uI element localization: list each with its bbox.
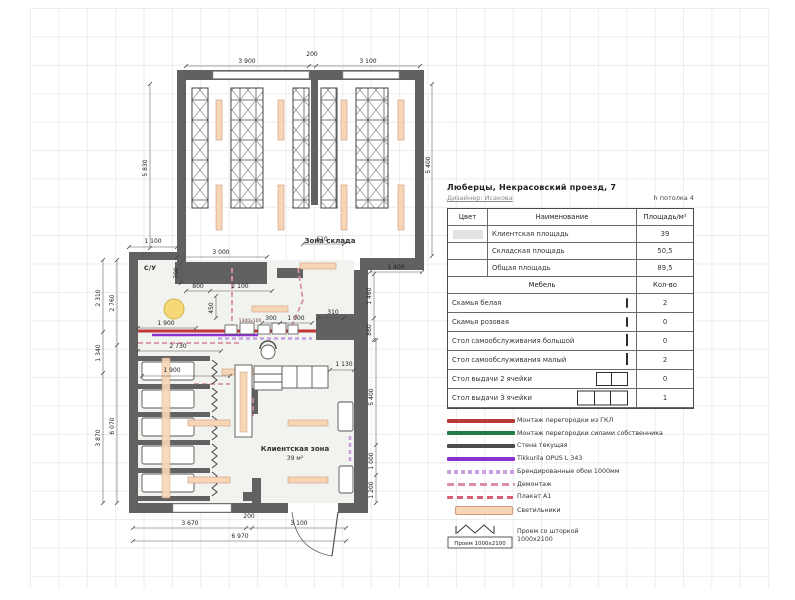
dim-label: 2 100 (231, 283, 248, 290)
dim-label: 5 400 (368, 388, 375, 405)
legend-label: Светильники (517, 507, 561, 514)
drawer-unit (254, 366, 282, 390)
info-panel: Люберцы, Некрасовский проезд, 7 Дизайнер… (447, 183, 694, 556)
wall-stub-l-foot (243, 492, 253, 501)
issue-table-2cells-icon (597, 372, 628, 386)
area-row: Складская площадь 50,5 (448, 243, 693, 260)
wall-mid-stub (311, 80, 318, 205)
legend-item: Tikkurila OPUS L 343 (447, 455, 694, 462)
area-value: 89,5 (637, 260, 693, 277)
dim-label: 6 070 (109, 417, 116, 434)
legend-item: Монтаж перегородки силами собственника (447, 430, 694, 437)
furniture-row: Стол выдачи 3 ячейки 1 (448, 389, 693, 408)
furniture-qty: 0 (637, 370, 693, 389)
self-service-table-big-icon (626, 334, 628, 346)
legend-item: Демонтаж (447, 481, 694, 488)
curtain-opening-swatch: Проем 1000х2100 (447, 521, 517, 551)
dim-label: 2 310 (95, 289, 102, 306)
legend-label: Плакат А1 (517, 493, 551, 500)
wc-label: С/У (144, 264, 156, 272)
dim-label: 3 670 (181, 520, 198, 527)
dim-label: 3 100 (290, 520, 307, 527)
rack (293, 88, 309, 208)
furniture-name: Стол выдачи 2 ячейки (452, 375, 532, 383)
dim-label: 1 460 (366, 287, 373, 304)
furniture-name: Стол самообслуживания малый (452, 356, 566, 364)
floor-plan-sheet: 1300х100 (0, 0, 795, 600)
area-table-header: Цвет Наименование Площадь/м² (448, 209, 693, 226)
dim-label: 860 (366, 324, 373, 336)
chair (261, 345, 275, 359)
furniture-qty: 2 (637, 294, 693, 313)
area-name: Складская площадь (488, 243, 637, 260)
dim-label: 3 100 (359, 58, 376, 65)
furniture-name: Скамья розовая (452, 318, 509, 326)
designer-link[interactable]: Дизайнер: Исакова (447, 194, 513, 202)
furniture-qty: 0 (637, 332, 693, 351)
client-zone-label: Клиентская зона (261, 445, 330, 453)
dim-label: 5 830 (142, 159, 149, 176)
bench-pink-icon (626, 317, 628, 327)
area-name: Общая площадь (488, 260, 637, 277)
dim-label: 200 (243, 513, 255, 520)
legend: Монтаж перегородки из ГКЛ Монтаж перегор… (447, 417, 694, 551)
wall-client-right (354, 340, 368, 512)
client-zone-area: 39 м² (287, 455, 304, 462)
legend-label: Tikkurila OPUS L 343 (517, 455, 582, 462)
dim-label: 1 100 (144, 238, 161, 245)
dim-label: 1 000 (368, 452, 375, 469)
dim-label: 200 (306, 51, 318, 58)
dim-label: 1 400 (387, 264, 404, 271)
col-qty: Кол-во (637, 277, 693, 294)
legend-item: Брендированные обои 1000мм (447, 468, 694, 475)
poster-swatch (447, 496, 515, 499)
rack (356, 88, 388, 208)
counter-light (240, 372, 247, 432)
furniture-name: Скамья белая (452, 299, 501, 307)
dim-label: 1 340 (95, 344, 102, 361)
legend-label: Монтаж перегородки из ГКЛ (517, 417, 613, 424)
furniture-row: Стол самообслуживания малый 2 (448, 351, 693, 370)
dim-label: 3 000 (212, 249, 229, 256)
wall-notch-top (129, 252, 177, 260)
legend-item: Проем 1000х2100 Проем со шторкой 1000х21… (447, 521, 694, 551)
address: Люберцы, Некрасовский проезд, 7 (447, 183, 694, 192)
ceiling-height: h потолка 4 (654, 194, 694, 202)
dim-label: 3 870 (95, 429, 102, 446)
client-area-swatch (453, 230, 483, 239)
furniture-name: Стол самообслуживания большой (452, 337, 574, 345)
wall-bottom-right (338, 503, 368, 513)
dim-label: 800 (192, 283, 204, 290)
dim-label: 3 900 (238, 58, 255, 65)
dim-label: 1 900 (163, 367, 180, 374)
bench-white-icon (626, 298, 628, 308)
dim-label: 700 (173, 267, 180, 279)
dim-label: 300 (265, 315, 277, 322)
area-name: Клиентская площадь (488, 226, 637, 243)
gkl-partition-swatch (447, 419, 515, 423)
window-top-left (213, 72, 309, 79)
dim-label: 1 000 (287, 315, 304, 322)
col-furniture: Мебель (448, 277, 637, 294)
door-arc (292, 512, 332, 556)
dim-label: 5 400 (425, 156, 432, 173)
area-row: Клиентская площадь 39 (448, 226, 693, 243)
rack (231, 88, 263, 208)
issue-table-3 (282, 366, 328, 388)
area-row: Общая площадь 89,5 (448, 260, 693, 277)
legend-label: Брендированные обои 1000мм (517, 468, 619, 475)
window-bottom (173, 504, 231, 512)
legend-label: Стена текущая (517, 442, 568, 449)
furniture-table: Мебель Кол-во Скамья белая 2 Скамья розо… (448, 277, 693, 408)
demolition-swatch (447, 483, 515, 486)
wall-client-left (129, 252, 138, 512)
dim-label: 2 730 (169, 343, 186, 350)
legend-item: Светильники (447, 506, 694, 515)
lamp-swatch (455, 506, 513, 515)
entry-door (292, 512, 338, 556)
legend-label: Проем со шторкой 1000х2100 (517, 528, 597, 542)
dim-label: 6 970 (231, 533, 248, 540)
owner-partition-swatch (447, 431, 515, 435)
legend-item: Стена текущая (447, 442, 694, 449)
furniture-row: Стол выдачи 2 ячейки 0 (448, 370, 693, 389)
area-table: Цвет Наименование Площадь/м² Клиентская … (447, 208, 694, 409)
door-leaf (332, 512, 338, 556)
col-area: Площадь/м² (637, 209, 693, 226)
legend-label: Монтаж перегородки силами собственника (517, 430, 663, 437)
dim-label: 310 (327, 309, 339, 316)
furniture-qty: 2 (637, 351, 693, 370)
furniture-row: Скамья розовая 0 (448, 313, 693, 332)
self-service-table-small-icon (626, 353, 628, 365)
curtain-box-label: Проем 1000х2100 (454, 541, 506, 547)
area-value: 39 (637, 226, 693, 243)
legend-item: Плакат А1 (447, 493, 694, 500)
furniture-row: Скамья белая 2 (448, 294, 693, 313)
storage-zone-label: Зона склада (305, 237, 356, 245)
issue-table-3cells-icon (579, 391, 629, 406)
existing-wall-swatch (447, 444, 515, 448)
area-value: 50,5 (637, 243, 693, 260)
furniture-qty: 0 (637, 313, 693, 332)
wallpaper-swatch (447, 470, 515, 474)
wall-stub-l (252, 478, 261, 504)
legend-item: Монтаж перегородки из ГКЛ (447, 417, 694, 424)
window-top-right (343, 72, 399, 79)
legend-label: Демонтаж (517, 481, 552, 488)
dim-label: 450 (208, 302, 215, 314)
furniture-name: Стол выдачи 3 ячейки (452, 394, 532, 402)
rack (192, 88, 208, 208)
col-name: Наименование (488, 209, 637, 226)
col-color: Цвет (448, 209, 488, 226)
pouf (164, 299, 184, 319)
wall-3000 (175, 262, 267, 284)
dim-label: 1 130 (335, 361, 352, 368)
paint-swatch (447, 457, 515, 461)
dim-label: 2 760 (109, 294, 116, 311)
fitting-room-light-strip (162, 358, 170, 498)
furniture-row: Стол самообслуживания большой 0 (448, 332, 693, 351)
dim-label: 1 200 (368, 481, 375, 498)
rack (321, 88, 337, 208)
furniture-table-header: Мебель Кол-во (448, 277, 693, 294)
furniture-qty: 1 (637, 389, 693, 408)
dim-label: 1 900 (157, 320, 174, 327)
wall-storage-left (177, 70, 186, 263)
wall-storage-right (415, 70, 424, 267)
shelf-size-label: 1300х100 (239, 318, 262, 324)
